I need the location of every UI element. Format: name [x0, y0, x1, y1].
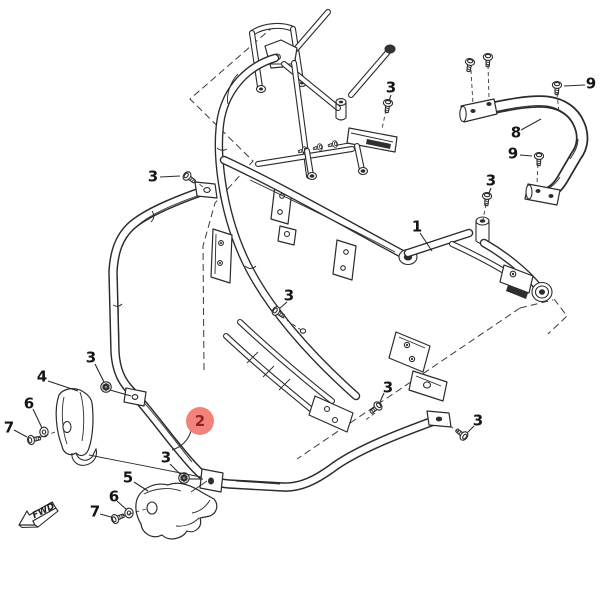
- bolt-3-rear-mount: [382, 99, 393, 113]
- bolt-9-upper: [552, 81, 562, 94]
- bolt-3-bumper-rear: [454, 426, 470, 441]
- bolt-grabbar-right: [483, 53, 493, 66]
- nut-3-front: [101, 382, 111, 392]
- bolt-3-floor: [368, 400, 384, 416]
- bolt-7-lower: [110, 511, 125, 524]
- fwd-arrow: FWD: [19, 501, 58, 527]
- parts-diagram-canvas: FWD 1233333333456677899: [0, 0, 600, 600]
- frame-cross-member: [258, 128, 397, 164]
- washer-6-front: [40, 427, 48, 437]
- hardware: [27, 53, 562, 524]
- lower-cover-part-5: [136, 483, 217, 539]
- rear-grab-bar-part-8: [460, 99, 582, 205]
- bolt-3-stud-right: [482, 192, 492, 206]
- bolt-grabbar-left: [464, 58, 475, 72]
- diagram-drawing: FWD: [0, 0, 600, 600]
- front-cover-part-4: [56, 389, 96, 466]
- bolt-7-front: [27, 434, 42, 446]
- fwd-label: FWD: [31, 501, 57, 521]
- main-frame-part-1: [211, 12, 552, 432]
- bolt-9-lower: [534, 152, 544, 165]
